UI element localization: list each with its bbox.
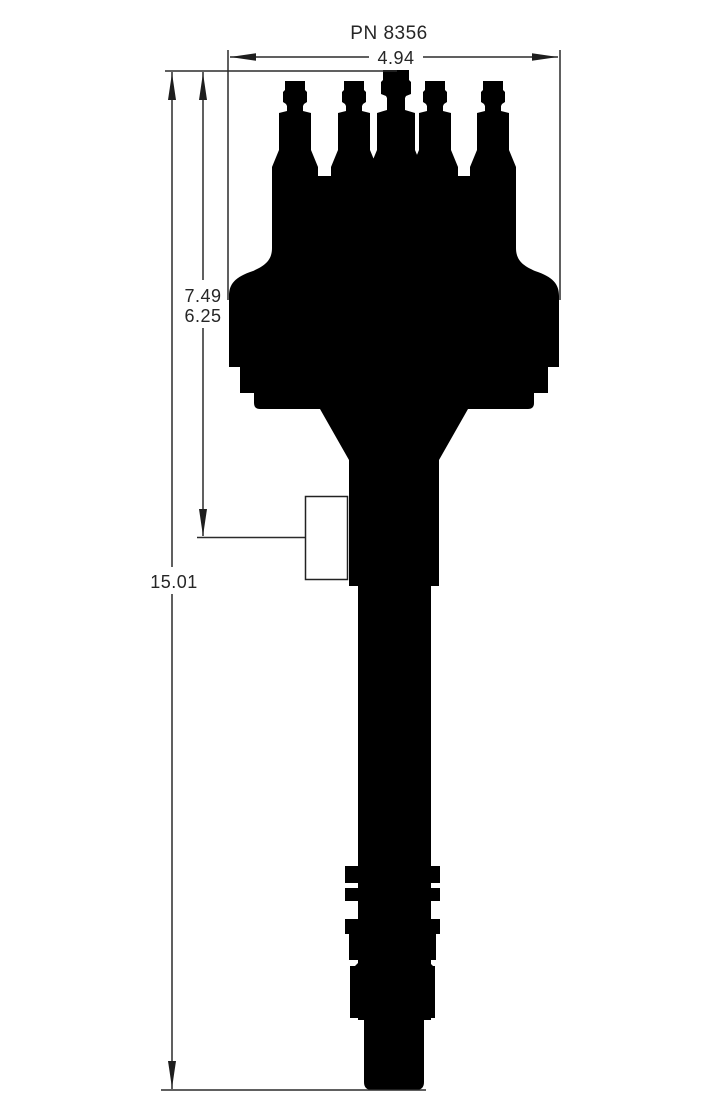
upper-height-dimension-label-b: 6.25 bbox=[184, 306, 221, 326]
cap-tower-2 bbox=[331, 81, 377, 181]
arrow-overall-top bbox=[168, 73, 176, 100]
arrow-width-right bbox=[532, 53, 558, 61]
arrow-overall-bottom bbox=[168, 1061, 176, 1088]
arrow-width-left bbox=[230, 53, 256, 61]
shaft-rib-1 bbox=[345, 866, 440, 883]
shaft-bottom-tip bbox=[364, 1014, 424, 1090]
arrow-upper-top bbox=[199, 73, 207, 100]
technical-drawing: PN 8356 4.94 7.49 6.25 15.01 bbox=[0, 0, 714, 1103]
cap-body bbox=[229, 176, 559, 586]
drawing-canvas: PN 8356 4.94 7.49 6.25 15.01 bbox=[0, 0, 714, 1103]
shaft-gear-block bbox=[350, 966, 435, 1018]
shaft-rib-2 bbox=[345, 888, 440, 901]
cap-tower-1 bbox=[272, 81, 318, 181]
slip-collar-outline bbox=[306, 497, 348, 580]
cap-tower-5 bbox=[470, 81, 516, 181]
width-dimension-label: 4.94 bbox=[377, 48, 414, 68]
distributor-shaft bbox=[345, 582, 440, 1090]
distributor-silhouette bbox=[229, 70, 559, 1090]
part-number-label: PN 8356 bbox=[350, 23, 427, 44]
cap-tower-4 bbox=[412, 81, 458, 181]
overall-height-dimension-label: 15.01 bbox=[150, 572, 198, 592]
upper-height-dimension-label-a: 7.49 bbox=[184, 286, 221, 306]
arrow-upper-bottom bbox=[199, 509, 207, 536]
shaft-rib-3 bbox=[345, 919, 440, 934]
